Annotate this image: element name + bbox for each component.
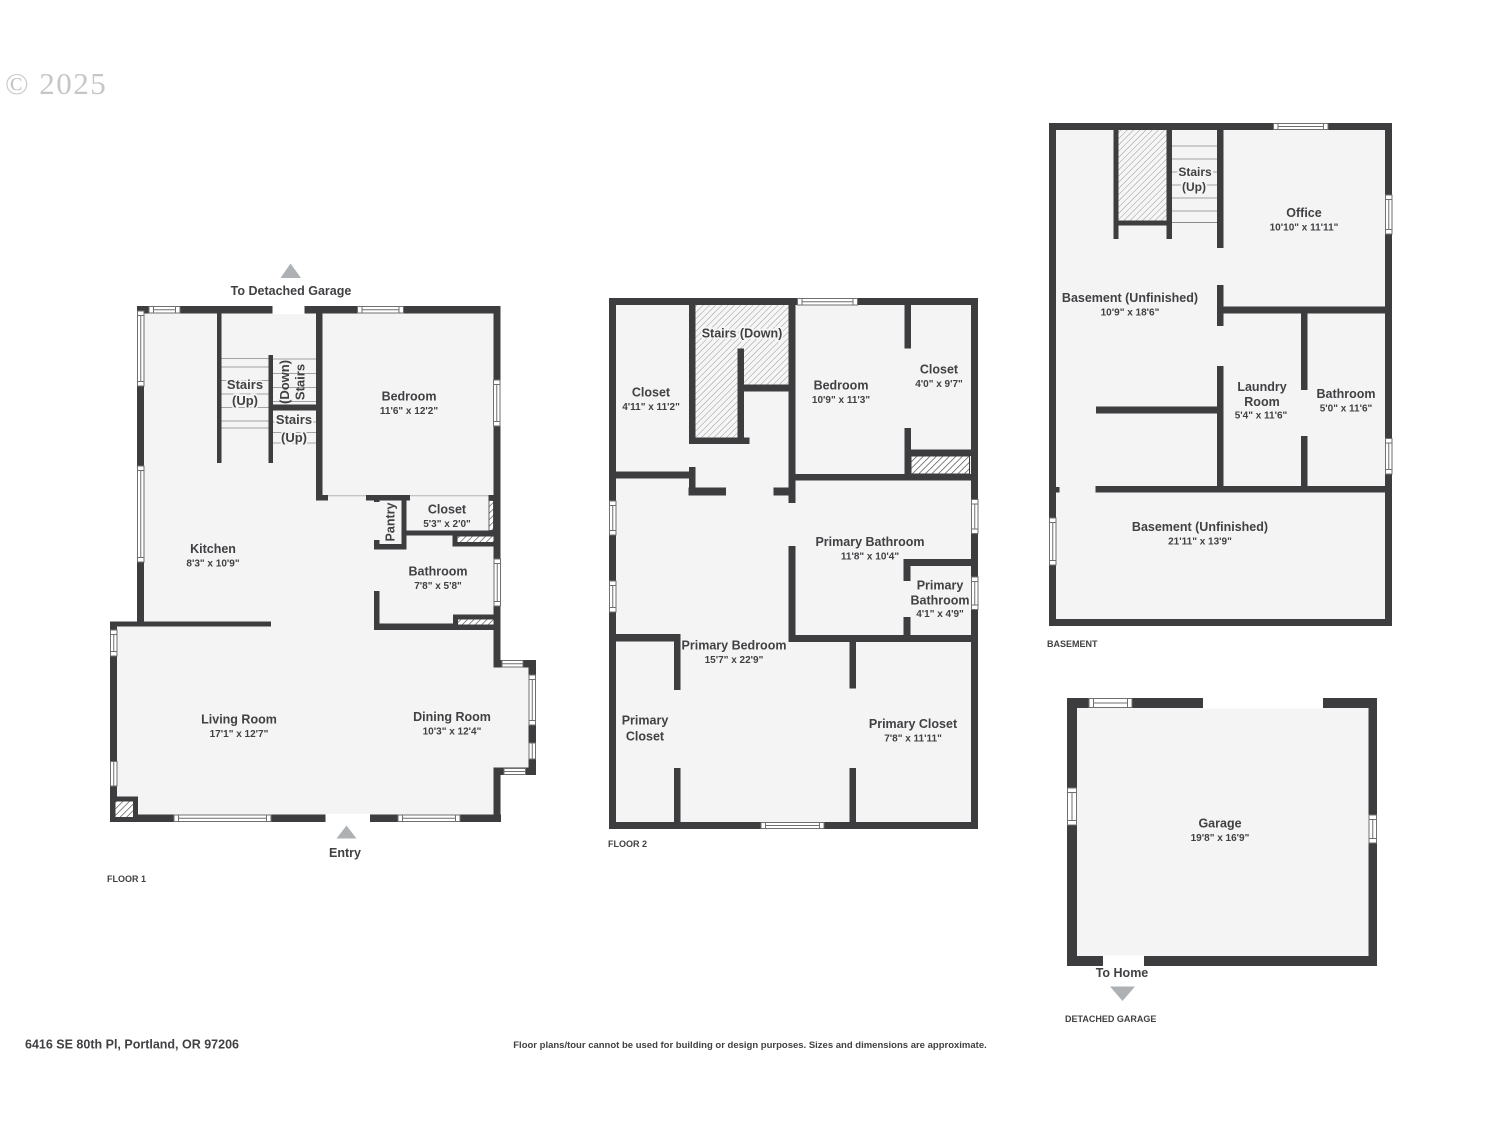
svg-text:5'3" x 2'0": 5'3" x 2'0" <box>423 519 471 530</box>
svg-text:Bedroom: Bedroom <box>814 379 869 393</box>
svg-text:Primary: Primary <box>917 579 964 593</box>
svg-text:(Up): (Up) <box>281 430 307 445</box>
svg-text:Bedroom: Bedroom <box>382 390 437 404</box>
svg-text:Bathroom: Bathroom <box>408 565 467 579</box>
svg-text:10'9" x 18'6": 10'9" x 18'6" <box>1101 308 1160 319</box>
svg-text:Closet: Closet <box>920 363 959 377</box>
svg-text:Stairs: Stairs <box>292 364 307 400</box>
svg-text:Bathroom: Bathroom <box>1316 387 1375 401</box>
svg-text:Basement (Unfinished): Basement (Unfinished) <box>1062 291 1198 305</box>
svg-text:10'3" x 12'4": 10'3" x 12'4" <box>423 727 482 738</box>
svg-text:FLOOR 1: FLOOR 1 <box>107 874 146 884</box>
svg-text:Dining Room: Dining Room <box>413 710 491 724</box>
svg-text:(Down): (Down) <box>277 360 292 404</box>
svg-text:Garage: Garage <box>1198 817 1241 831</box>
svg-text:BASEMENT: BASEMENT <box>1047 639 1098 649</box>
svg-text:Primary: Primary <box>622 714 669 728</box>
svg-text:4'11" x 11'2": 4'11" x 11'2" <box>622 402 680 413</box>
svg-text:17'1" x 12'7": 17'1" x 12'7" <box>210 729 269 740</box>
svg-text:Primary Bathroom: Primary Bathroom <box>815 535 924 549</box>
svg-text:15'7" x 22'9": 15'7" x 22'9" <box>705 655 764 666</box>
svg-text:Entry: Entry <box>329 846 361 860</box>
svg-text:11'6" x 12'2": 11'6" x 12'2" <box>380 406 438 417</box>
svg-text:Primary Closet: Primary Closet <box>869 717 958 731</box>
svg-text:21'11" x 13'9": 21'11" x 13'9" <box>1168 537 1232 548</box>
svg-text:10'10" x 11'11": 10'10" x 11'11" <box>1270 223 1339 234</box>
svg-text:Stairs: Stairs <box>227 377 263 392</box>
svg-text:© 2025: © 2025 <box>5 66 107 101</box>
svg-text:Floor plans/tour cannot be use: Floor plans/tour cannot be used for buil… <box>513 1040 987 1051</box>
svg-text:8'3" x 10'9": 8'3" x 10'9" <box>186 559 239 570</box>
svg-text:Basement (Unfinished): Basement (Unfinished) <box>1132 520 1268 534</box>
svg-text:Stairs: Stairs <box>276 412 312 427</box>
svg-text:6416 SE 80th Pl, Portland, OR: 6416 SE 80th Pl, Portland, OR 97206 <box>25 1038 239 1052</box>
svg-text:Closet: Closet <box>626 730 665 744</box>
svg-text:5'0" x 11'6": 5'0" x 11'6" <box>1320 404 1373 415</box>
svg-text:Bathroom: Bathroom <box>910 594 969 608</box>
svg-text:Closet: Closet <box>428 503 467 517</box>
svg-text:4'1" x 4'9": 4'1" x 4'9" <box>916 609 964 620</box>
svg-text:Laundry: Laundry <box>1237 380 1286 394</box>
svg-text:To Detached Garage: To Detached Garage <box>231 284 352 298</box>
svg-text:Room: Room <box>1244 395 1279 409</box>
svg-text:5'4" x 11'6": 5'4" x 11'6" <box>1235 411 1288 422</box>
svg-text:19'8" x 16'9": 19'8" x 16'9" <box>1191 833 1250 844</box>
svg-text:Pantry: Pantry <box>383 503 397 542</box>
svg-text:Closet: Closet <box>632 386 671 400</box>
svg-text:(Up): (Up) <box>232 393 258 408</box>
svg-text:FLOOR 2: FLOOR 2 <box>608 839 647 849</box>
svg-text:DETACHED GARAGE: DETACHED GARAGE <box>1065 1014 1156 1024</box>
svg-text:7'8" x 11'11": 7'8" x 11'11" <box>884 734 942 745</box>
svg-text:4'0" x 9'7": 4'0" x 9'7" <box>915 379 963 390</box>
svg-text:(Up): (Up) <box>1182 180 1206 194</box>
svg-text:Living Room: Living Room <box>201 713 277 727</box>
svg-text:Primary Bedroom: Primary Bedroom <box>682 639 787 653</box>
svg-text:To Home: To Home <box>1096 966 1149 980</box>
svg-text:11'8" x 10'4": 11'8" x 10'4" <box>841 552 899 563</box>
svg-text:7'8" x 5'8": 7'8" x 5'8" <box>414 581 462 592</box>
svg-text:Office: Office <box>1286 206 1321 220</box>
svg-text:Kitchen: Kitchen <box>190 542 236 556</box>
svg-text:10'9" x 11'3": 10'9" x 11'3" <box>812 395 870 406</box>
svg-text:Stairs (Down): Stairs (Down) <box>702 327 783 341</box>
svg-text:Stairs: Stairs <box>1178 165 1212 179</box>
